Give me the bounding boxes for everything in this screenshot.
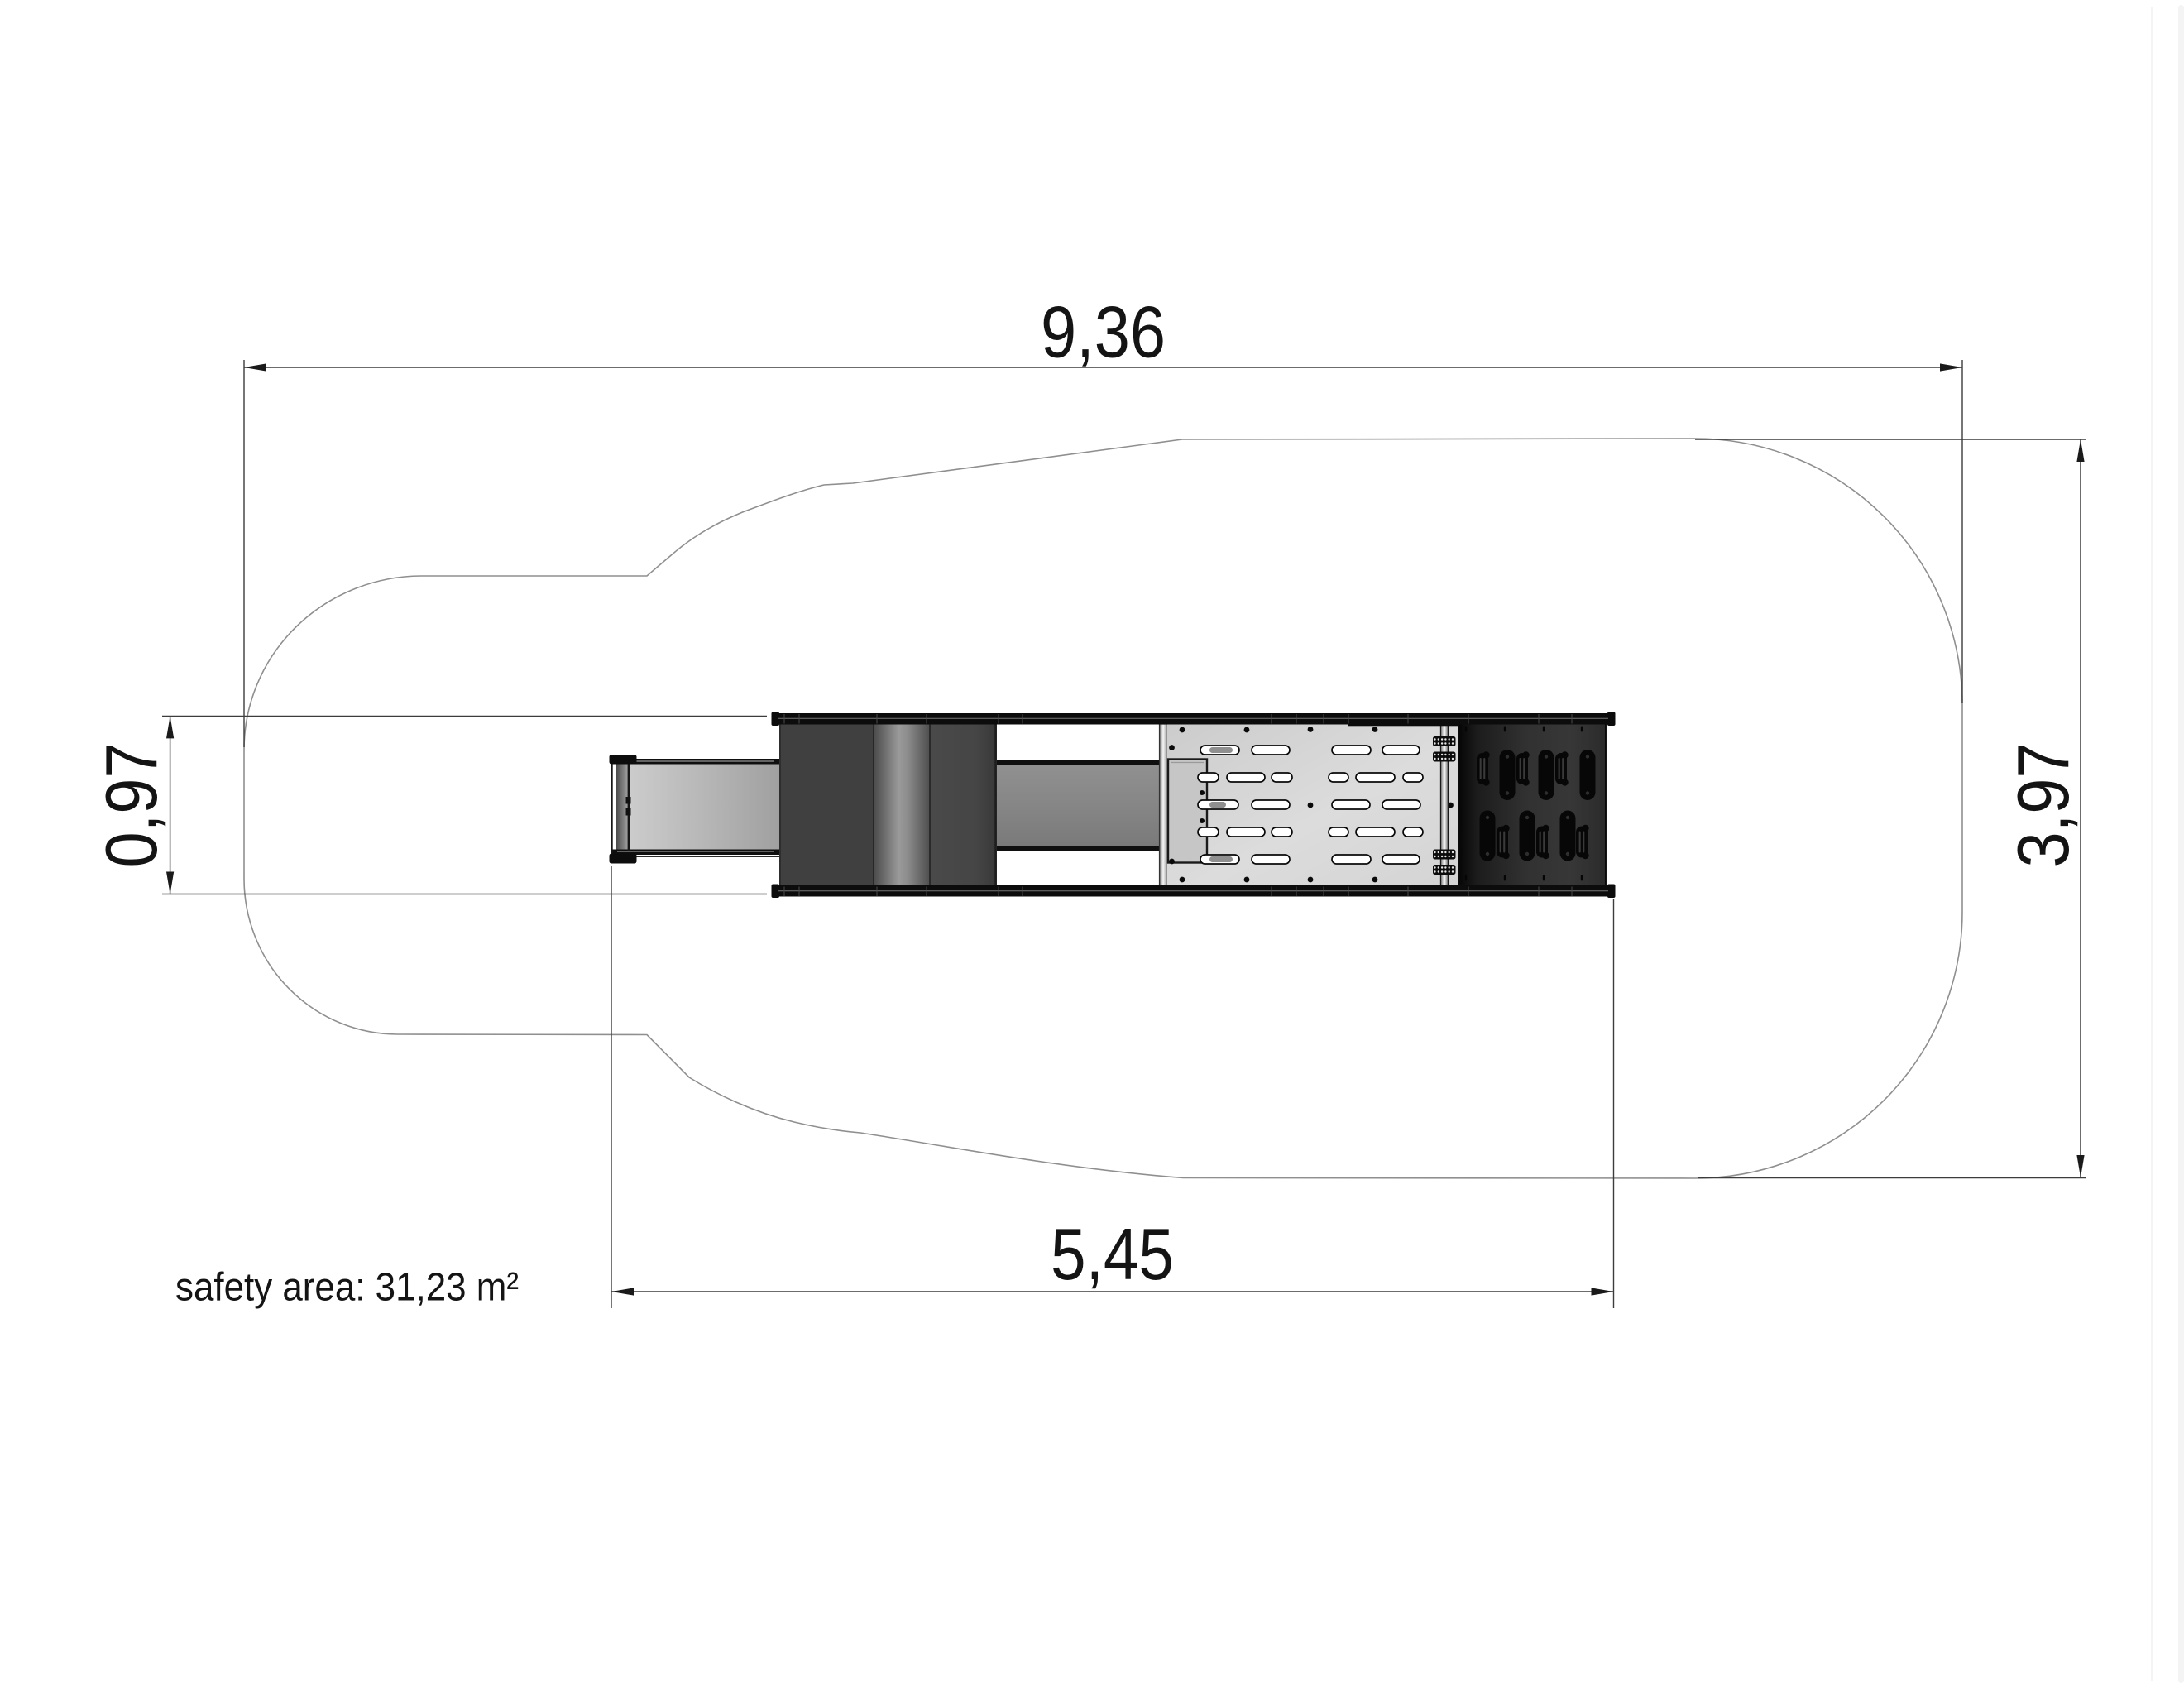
svg-text:safety area: 31,23 m²: safety area: 31,23 m² xyxy=(175,1265,519,1310)
svg-text:9,36: 9,36 xyxy=(1041,290,1166,372)
svg-text:5,45: 5,45 xyxy=(1051,1213,1174,1295)
svg-text:3,97: 3,97 xyxy=(2002,743,2084,868)
svg-text:0,97: 0,97 xyxy=(90,743,172,868)
